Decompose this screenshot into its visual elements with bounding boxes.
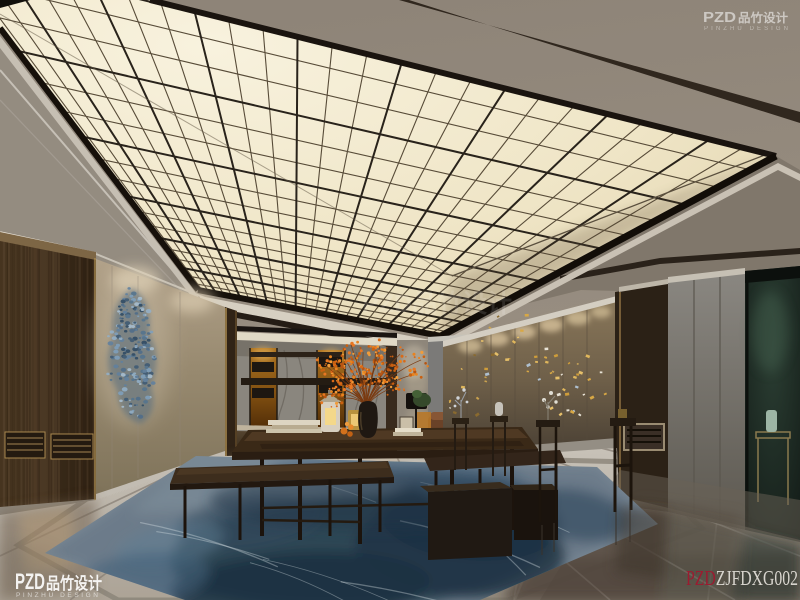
- svg-text:PZDZJFDXG002: PZDZJFDXG002: [686, 566, 798, 590]
- svg-text:PZD: PZD: [15, 569, 45, 594]
- svg-text:PINZHU DESIGN: PINZHU DESIGN: [704, 26, 788, 32]
- svg-text:PINZHU DESIGN: PINZHU DESIGN: [16, 592, 98, 599]
- svg-text:PZD品竹设计: PZD品竹设计: [362, 290, 512, 318]
- svg-text:品竹设计: 品竹设计: [738, 10, 788, 25]
- svg-text:PZD: PZD: [703, 9, 736, 26]
- svg-text:品竹设计: 品竹设计: [46, 573, 102, 593]
